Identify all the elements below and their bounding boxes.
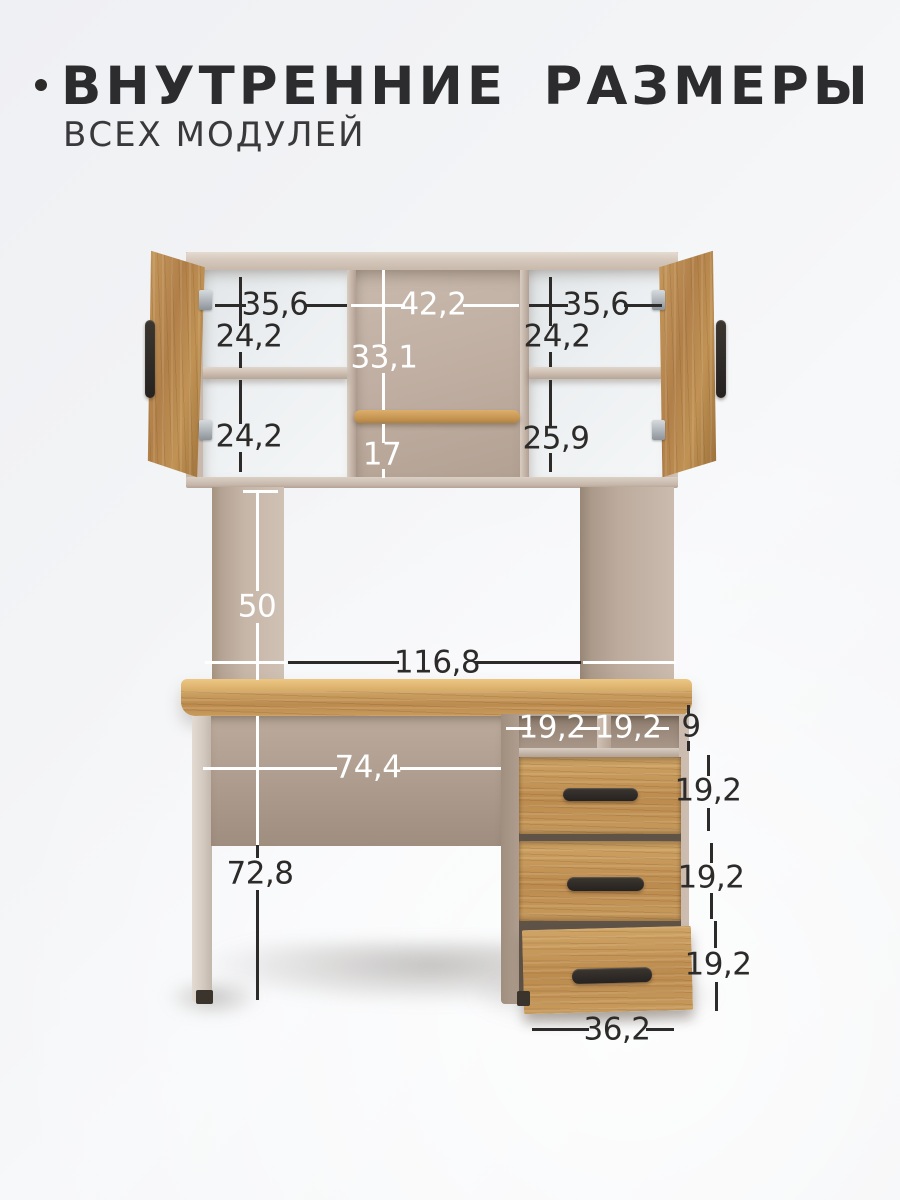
dim-label-drawer-2-height: 19,2 xyxy=(677,863,744,894)
right-door-handle xyxy=(716,320,726,398)
hutch-left-shelf xyxy=(203,367,347,379)
page-title: ВНУТРЕННИЕ РАЗМЕРЫ xyxy=(61,56,872,117)
dim-line xyxy=(203,767,337,770)
dim-line xyxy=(652,727,669,730)
page-subtitle: ВСЕХ МОДУЛЕЙ xyxy=(63,115,366,155)
dim-label-hutch-center-width: 42,2 xyxy=(399,290,466,321)
dim-line xyxy=(243,490,278,493)
pedestal-niche-shelf xyxy=(519,748,679,757)
dim-label-niche-left-width: 19,2 xyxy=(518,713,585,744)
dim-line xyxy=(400,767,501,770)
drawer-2-handle xyxy=(567,877,644,891)
dim-label-hutch-center-upper-height: 33,1 xyxy=(350,343,417,374)
hutch-right-door xyxy=(656,246,720,482)
dim-line xyxy=(382,373,385,410)
left-door-hinge-top xyxy=(199,290,212,310)
dim-line xyxy=(382,270,385,344)
drawer-1-handle xyxy=(563,788,638,801)
title-bullet-icon xyxy=(35,79,47,91)
right-support-panel xyxy=(580,487,674,680)
dim-line xyxy=(463,304,519,307)
dim-label-niche-height: 9 xyxy=(681,712,700,743)
dim-line xyxy=(256,623,259,680)
right-door-hinge-bottom xyxy=(652,420,665,440)
dim-label-drawer-1-height: 19,2 xyxy=(674,776,741,807)
dim-line xyxy=(624,304,662,307)
dim-line xyxy=(532,1028,589,1031)
dim-label-opening-height: 50 xyxy=(238,592,276,623)
pedestal-foot xyxy=(517,991,530,1006)
dim-line xyxy=(710,893,713,919)
dim-line xyxy=(239,452,242,472)
dim-label-hutch-left-upper-height: 24,2 xyxy=(215,322,282,353)
dim-line xyxy=(714,921,717,948)
dim-line xyxy=(256,716,259,845)
dim-label-hutch-left-lower-height: 24,2 xyxy=(215,422,282,453)
dim-label-pedestal-width: 36,2 xyxy=(583,1015,650,1046)
floor-shadow-left-leg xyxy=(168,982,258,1016)
dimensions-infographic: ВНУТРЕННИЕ РАЗМЕРЫ ВСЕХ МОДУЛЕЙ xyxy=(0,0,900,1200)
desk-left-side-panel xyxy=(192,716,212,1002)
left-door-hinge-bottom xyxy=(199,420,212,440)
dim-line xyxy=(715,982,718,1011)
desk-left-foot xyxy=(196,990,213,1004)
dim-line xyxy=(475,661,581,664)
hutch-right-shelf xyxy=(529,367,663,379)
right-door-hinge-top xyxy=(652,290,665,310)
dim-label-desk-height: 72,8 xyxy=(226,859,293,890)
dim-label-hutch-right-upper-height: 24,2 xyxy=(523,322,590,353)
dim-line xyxy=(305,304,347,307)
hutch-top-board xyxy=(186,252,678,270)
dim-label-knee-space-width: 74,4 xyxy=(334,753,401,784)
dim-line xyxy=(549,380,552,426)
dim-line xyxy=(288,661,399,664)
dim-line xyxy=(707,808,710,831)
dim-line xyxy=(256,492,259,591)
dim-line xyxy=(351,304,405,307)
dim-label-hutch-left-width: 35,6 xyxy=(241,290,308,321)
dim-label-hutch-right-width: 35,6 xyxy=(562,290,629,321)
dim-line xyxy=(583,661,676,664)
dim-label-hutch-center-lower-height: 17 xyxy=(363,440,401,471)
dim-line xyxy=(239,380,242,424)
dim-label-opening-width: 116,8 xyxy=(394,648,480,679)
dim-line xyxy=(205,661,286,664)
drawer-3-handle xyxy=(572,967,652,984)
left-door-handle xyxy=(145,320,155,398)
hutch-wood-rail xyxy=(354,410,520,423)
desk-top-surface xyxy=(181,679,692,691)
left-support-panel xyxy=(212,487,284,680)
dim-label-drawer-3-height: 19,2 xyxy=(684,950,751,981)
dim-line xyxy=(256,890,259,1000)
dim-label-hutch-right-lower-height: 25,9 xyxy=(522,424,589,455)
